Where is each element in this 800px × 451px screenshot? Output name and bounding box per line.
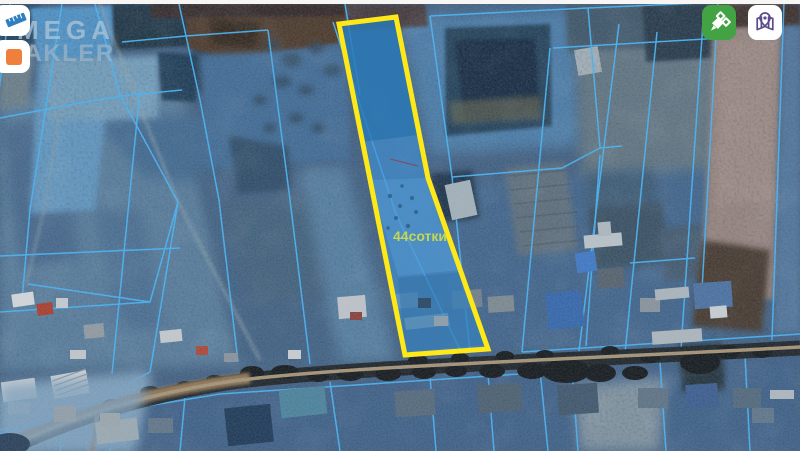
svg-text:44сотки: 44сотки [393, 228, 447, 244]
